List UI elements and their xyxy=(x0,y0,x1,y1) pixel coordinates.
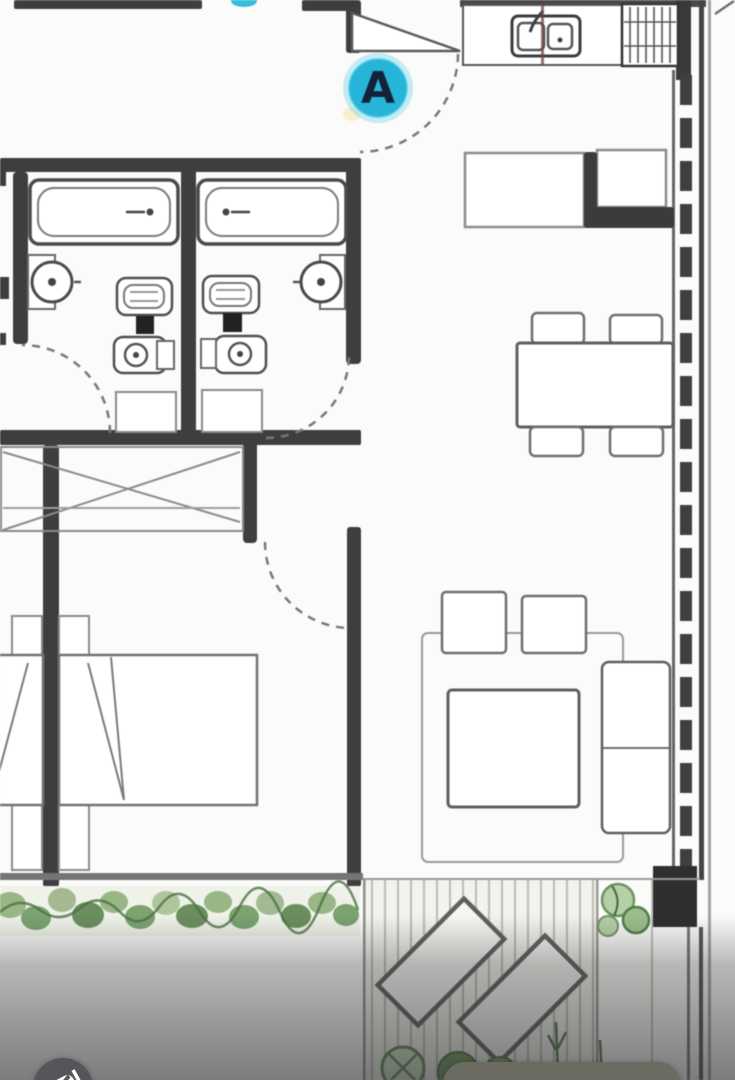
chair-icon xyxy=(532,313,584,344)
coffee-table-icon xyxy=(448,690,579,807)
brand-logo-icon xyxy=(33,1058,93,1080)
chair-icon xyxy=(610,427,663,456)
chair-icon xyxy=(610,315,662,344)
chair-icon xyxy=(530,427,583,456)
section-line xyxy=(541,5,544,65)
toilet-icon xyxy=(117,278,172,334)
cut-marker xyxy=(231,0,257,7)
shower-mat xyxy=(202,390,262,432)
floorplan-image[interactable]: A xyxy=(0,0,735,1080)
bed-icon xyxy=(59,616,257,870)
living-area xyxy=(422,592,670,862)
marker-label: A xyxy=(361,63,395,114)
armchair-icon xyxy=(442,592,506,653)
kitchen xyxy=(463,4,678,228)
shower-mat xyxy=(116,392,176,432)
garden-strip xyxy=(0,881,360,936)
plants-icon xyxy=(598,884,649,936)
bathtub-icon xyxy=(198,180,346,244)
bathroom-2 xyxy=(198,180,349,438)
kitchen-sink-icon xyxy=(512,11,580,56)
bathroom-1 xyxy=(22,180,178,433)
wall-counter xyxy=(597,150,666,207)
terrace xyxy=(363,879,700,1080)
bidet-icon xyxy=(201,336,266,373)
door-swing xyxy=(265,542,350,628)
dining-table-icon xyxy=(517,343,673,427)
annotation-tick xyxy=(715,1,734,14)
bathtub-icon xyxy=(30,180,178,244)
washbasin-icon xyxy=(293,255,345,309)
watermark-badge-button[interactable] xyxy=(33,1058,93,1080)
floorplan-screenshot: A xyxy=(0,0,735,1080)
armchair-icon xyxy=(522,596,586,653)
peninsula-counter xyxy=(465,153,584,227)
wardrobe-icon xyxy=(1,447,243,531)
cooktop-icon xyxy=(622,4,678,66)
bottom-sheet-pill[interactable] xyxy=(443,1062,680,1080)
dining-area xyxy=(517,313,673,456)
door-swing xyxy=(22,345,110,433)
bed-partial-icon xyxy=(0,616,43,870)
washbasin-icon xyxy=(28,255,81,309)
photo-edge-line xyxy=(708,0,711,1080)
bidet-icon xyxy=(114,337,174,373)
unit-marker[interactable]: A xyxy=(343,53,413,123)
toilet-icon xyxy=(203,276,259,332)
door-swing xyxy=(266,355,349,438)
